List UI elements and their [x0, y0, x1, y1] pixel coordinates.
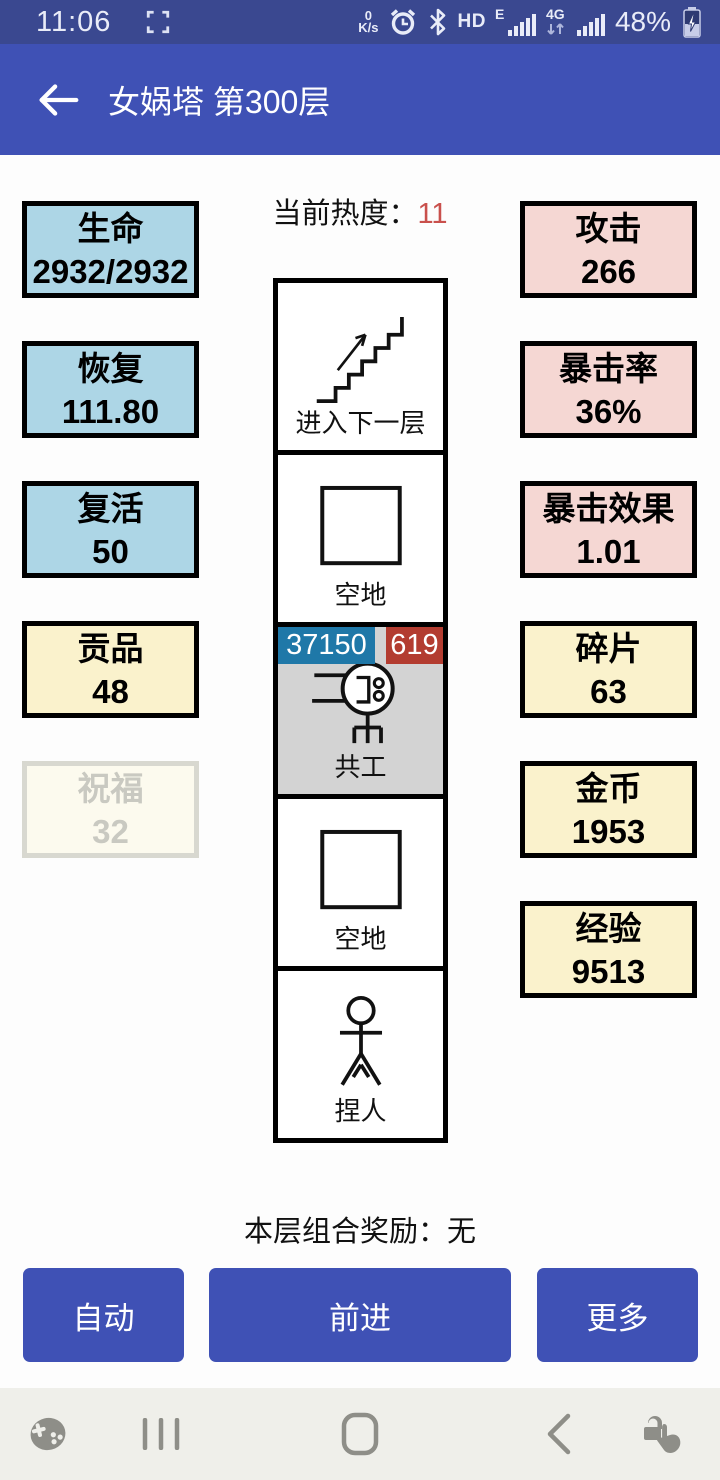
heat-label: 当前热度： — [272, 198, 417, 230]
stat-gold[interactable]: 金币 1953 — [520, 761, 697, 858]
cell-label: 进入下一层 — [295, 403, 425, 440]
stat-label: 恢复 — [78, 347, 144, 390]
cell-label: 空地 — [334, 575, 386, 612]
stat-label: 复活 — [78, 487, 144, 530]
android-nav-bar — [0, 1388, 720, 1480]
stat-value: 9513 — [572, 950, 645, 993]
stat-value: 111.80 — [62, 390, 159, 433]
battery-percent: 48% — [615, 6, 671, 38]
stat-exp[interactable]: 经验 9513 — [520, 901, 697, 998]
stat-label: 攻击 — [576, 207, 642, 250]
stairs-up-icon — [305, 303, 417, 412]
empty-square-icon — [305, 475, 417, 584]
stat-label: 碎片 — [576, 627, 642, 670]
stick-figure-icon — [305, 991, 417, 1100]
monster-hp-badge: 37150 — [278, 627, 375, 664]
touch-lock-icon[interactable] — [638, 1410, 686, 1458]
stat-attack[interactable]: 攻击 266 — [520, 201, 697, 298]
stat-recovery[interactable]: 恢复 111.80 — [22, 341, 199, 438]
floor-combo-reward-line: 本层组合奖励：无 — [0, 1208, 720, 1250]
stat-value: 48 — [92, 670, 129, 713]
stat-value: 1953 — [572, 810, 645, 853]
stat-label: 祝福 — [78, 767, 144, 810]
monster-icon — [305, 656, 417, 761]
recents-icon[interactable] — [140, 1418, 182, 1450]
heat-value: 11 — [417, 198, 447, 230]
map-cell-empty-2[interactable]: 空地 — [273, 794, 448, 971]
clock-time: 11:06 — [36, 6, 111, 39]
game-launcher-icon[interactable] — [25, 1413, 71, 1455]
stat-label: 经验 — [576, 907, 642, 950]
svg-text:4G: 4G — [546, 6, 565, 22]
stat-value: 50 — [92, 530, 129, 573]
alarm-icon — [388, 7, 418, 37]
stat-value: 1.01 — [576, 530, 640, 573]
stat-label: 金币 — [576, 767, 642, 810]
back-icon[interactable] — [544, 1412, 572, 1456]
map-cell-empty-1[interactable]: 空地 — [273, 450, 448, 627]
network-speed-indicator: 0 K/s — [358, 10, 378, 34]
cell-label: 共工 — [334, 747, 386, 784]
stat-label: 生命 — [78, 207, 144, 250]
stat-hp[interactable]: 生命 2932/2932 — [22, 201, 199, 298]
stat-value: 32 — [92, 810, 129, 853]
stats-column-right: 攻击 266 暴击率 36% 暴击效果 1.01 碎片 63 金币 1953 经… — [520, 201, 697, 1041]
battery-icon — [680, 5, 704, 39]
map-cell-next-floor[interactable]: 进入下一层 — [273, 278, 448, 455]
home-icon[interactable] — [341, 1412, 379, 1456]
stat-value: 63 — [590, 670, 627, 713]
status-bar: 11:06 0 K/s HD E — [0, 0, 720, 44]
map-cell-create-person[interactable]: 捏人 — [273, 966, 448, 1143]
bluetooth-icon — [427, 7, 449, 37]
cell-label: 空地 — [334, 919, 386, 956]
screenshot-icon — [145, 9, 171, 35]
map-column: 进入下一层 空地 37150 619 共工 — [273, 278, 448, 1143]
stat-label: 暴击效果 — [543, 487, 675, 530]
stat-crit-effect[interactable]: 暴击效果 1.01 — [520, 481, 697, 578]
back-arrow-button[interactable] — [18, 70, 98, 130]
page-title: 女娲塔 第300层 — [108, 77, 330, 123]
stat-revive[interactable]: 复活 50 — [22, 481, 199, 578]
stat-value: 2932/2932 — [33, 250, 189, 293]
stat-value: 36% — [575, 390, 641, 433]
cell-label: 捏人 — [334, 1091, 386, 1128]
forward-button[interactable]: 前进 — [209, 1268, 511, 1362]
stat-label: 贡品 — [78, 627, 144, 670]
stat-blessing-disabled: 祝福 32 — [22, 761, 199, 858]
sim2-signal-icon: 4G — [546, 6, 606, 38]
more-button[interactable]: 更多 — [537, 1268, 698, 1362]
svg-text:E: E — [495, 6, 504, 22]
map-cell-monster-gonggong[interactable]: 37150 619 共工 — [273, 622, 448, 799]
stats-column-left: 生命 2932/2932 恢复 111.80 复活 50 贡品 48 祝福 32 — [22, 201, 199, 901]
empty-square-icon — [305, 819, 417, 928]
stat-shards[interactable]: 碎片 63 — [520, 621, 697, 718]
stat-label: 暴击率 — [559, 347, 658, 390]
auto-button[interactable]: 自动 — [23, 1268, 184, 1362]
sim1-signal-icon: E — [495, 6, 537, 38]
monster-atk-badge: 619 — [386, 627, 443, 664]
app-bar: 女娲塔 第300层 — [0, 44, 720, 155]
stat-crit-rate[interactable]: 暴击率 36% — [520, 341, 697, 438]
hd-voice-indicator: HD — [458, 11, 486, 33]
stat-value: 266 — [581, 250, 636, 293]
stat-tribute[interactable]: 贡品 48 — [22, 621, 199, 718]
